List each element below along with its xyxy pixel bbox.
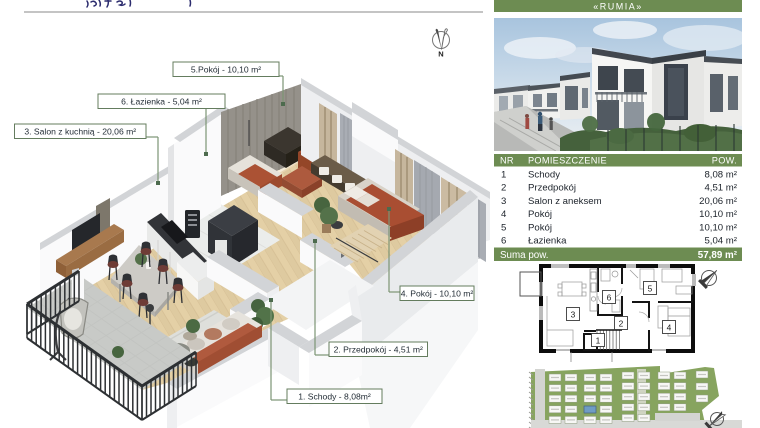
svg-text:6. Łazienka - 5,04 m²: 6. Łazienka - 5,04 m² <box>121 97 202 107</box>
svg-text:Salon z aneksem: Salon z aneksem <box>528 196 602 207</box>
svg-text:5: 5 <box>501 222 506 233</box>
svg-text:2: 2 <box>619 318 624 328</box>
svg-text:NR: NR <box>500 156 514 166</box>
svg-text:5.Pokój - 10,10 m²: 5.Pokój - 10,10 m² <box>191 65 261 75</box>
svg-text:2. Przedpokój - 4,51 m²: 2. Przedpokój - 4,51 m² <box>334 345 423 355</box>
svg-text:10,10 m²: 10,10 m² <box>699 209 738 220</box>
svg-text:6: 6 <box>501 236 506 247</box>
svg-text:4,51 m²: 4,51 m² <box>704 183 737 194</box>
svg-text:3: 3 <box>501 196 506 207</box>
svg-text:N: N <box>438 50 443 59</box>
svg-text:10,10 m²: 10,10 m² <box>699 222 738 233</box>
svg-text:POW.: POW. <box>712 156 737 166</box>
svg-text:4. Pokój - 10,10 m²: 4. Pokój - 10,10 m² <box>401 289 474 299</box>
svg-text:6: 6 <box>607 292 612 302</box>
svg-text:3: 3 <box>571 309 576 319</box>
svg-text:Łazienka: Łazienka <box>528 236 567 247</box>
svg-text:8,08 m²: 8,08 m² <box>704 170 737 181</box>
svg-text:Pokój: Pokój <box>528 209 552 220</box>
svg-text:2: 2 <box>501 183 506 194</box>
svg-text:4: 4 <box>667 322 672 332</box>
svg-text:4: 4 <box>501 209 507 220</box>
svg-text:Pokój: Pokój <box>528 222 552 233</box>
svg-text:1. Schody - 8,08m²: 1. Schody - 8,08m² <box>298 392 371 402</box>
svg-text:5: 5 <box>648 283 653 293</box>
svg-text:«RUMIA»: «RUMIA» <box>593 2 643 12</box>
svg-text:POMIESZCZENIE: POMIESZCZENIE <box>528 156 607 166</box>
svg-text:1: 1 <box>596 335 601 345</box>
svg-text:Suma pow.: Suma pow. <box>500 250 548 261</box>
svg-text:57,89 m²: 57,89 m² <box>698 250 738 261</box>
svg-text:1: 1 <box>501 170 506 181</box>
svg-text:Przedpokój: Przedpokój <box>528 183 576 194</box>
svg-text:Schody: Schody <box>528 170 560 181</box>
svg-text:5,04 m²: 5,04 m² <box>704 236 737 247</box>
svg-text:20,06 m²: 20,06 m² <box>699 196 738 207</box>
svg-text:3. Salon z kuchnią - 20,06 m²: 3. Salon z kuchnią - 20,06 m² <box>24 127 136 137</box>
